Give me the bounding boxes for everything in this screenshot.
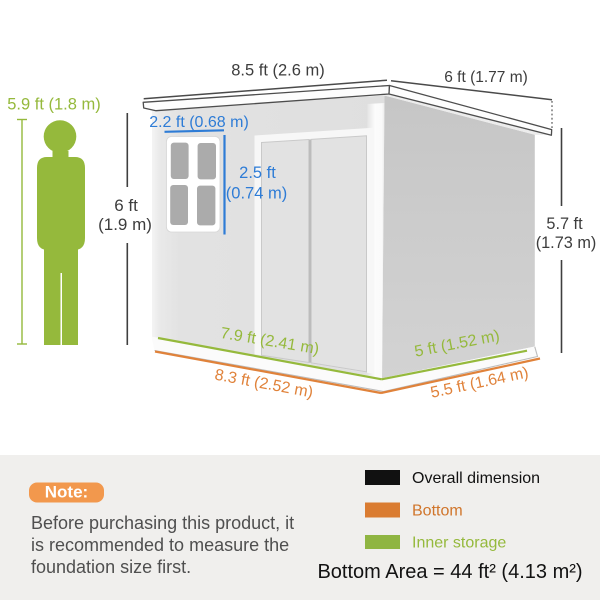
svg-text:Bottom: Bottom <box>412 503 463 520</box>
svg-text:6 ft (1.77 m): 6 ft (1.77 m) <box>444 69 528 86</box>
svg-text:is recommended to measure the: is recommended to measure the <box>31 535 289 555</box>
svg-text:(0.74 m): (0.74 m) <box>226 185 287 203</box>
svg-text:(1.9 m): (1.9 m) <box>98 215 152 234</box>
svg-text:Overall dimension: Overall dimension <box>412 470 540 487</box>
svg-text:5.9 ft (1.8 m): 5.9 ft (1.8 m) <box>7 96 101 114</box>
svg-text:Inner storage: Inner storage <box>412 535 506 552</box>
svg-text:Before purchasing this product: Before purchasing this product, it <box>31 513 294 533</box>
svg-text:2.5 ft: 2.5 ft <box>239 164 276 182</box>
svg-text:2.2 ft (0.68 m): 2.2 ft (0.68 m) <box>149 114 249 131</box>
svg-text:6 ft: 6 ft <box>114 196 138 215</box>
svg-text:Bottom Area = 44 ft² (4.13 m²): Bottom Area = 44 ft² (4.13 m²) <box>317 561 582 583</box>
svg-text:foundation size first.: foundation size first. <box>31 557 191 577</box>
svg-text:5.7 ft: 5.7 ft <box>546 215 583 233</box>
svg-text:8.5 ft (2.6 m): 8.5 ft (2.6 m) <box>231 62 325 80</box>
svg-text:Note:: Note: <box>45 483 88 502</box>
svg-text:(1.73 m): (1.73 m) <box>536 234 597 252</box>
